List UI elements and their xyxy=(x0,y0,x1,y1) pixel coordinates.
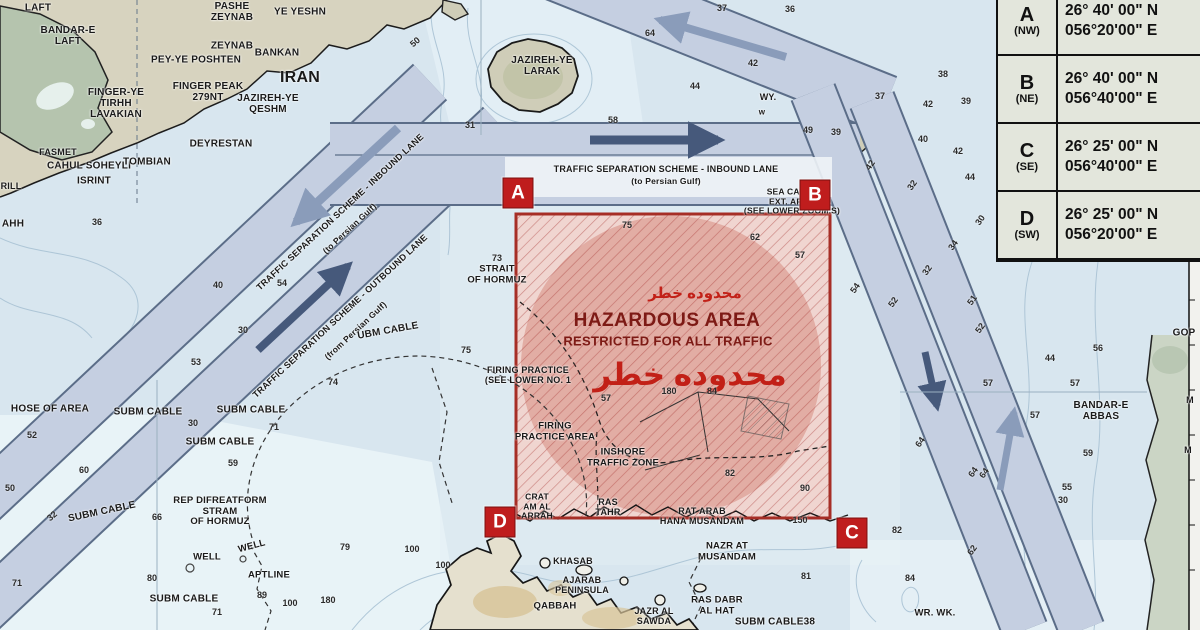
corner-letter: D xyxy=(1020,209,1034,229)
hazardous-area xyxy=(500,214,848,524)
corner-direction: (SW) xyxy=(1014,229,1039,241)
latitude-value: 26° 40' 00" N xyxy=(1065,69,1200,89)
coord-row-d: D (SW) 26° 25' 00" N 056°20'00" E xyxy=(998,192,1200,260)
hazard-hatching xyxy=(516,214,830,518)
coord-row-b: B (NE) 26° 40' 00" N 056°40'00" E xyxy=(998,56,1200,124)
corner-letter: B xyxy=(1020,73,1034,93)
latitude-value: 26° 40' 00" N xyxy=(1065,1,1200,21)
corner-letter: C xyxy=(1020,141,1034,161)
latitude-value: 26° 25' 00" N xyxy=(1065,205,1200,225)
corner-letter: A xyxy=(1020,5,1034,25)
coord-row-a: A (NW) 26° 40' 00" N 056°20'00" E xyxy=(998,0,1200,56)
longitude-value: 056°20'00" E xyxy=(1065,21,1200,41)
corner-direction: (NW) xyxy=(1014,25,1040,37)
coord-row-c: C (SE) 26° 25' 00" N 056°40'00" E xyxy=(998,124,1200,192)
longitude-value: 056°40'00" E xyxy=(1065,157,1200,177)
nautical-chart: محدوده خطر HAZARDOUS AREA RESTRICTED FOR… xyxy=(0,0,1200,630)
corner-direction: (NE) xyxy=(1016,93,1039,105)
coordinate-table: A (NW) 26° 40' 00" N 056°20'00" E B (NE)… xyxy=(996,0,1200,262)
longitude-value: 056°40'00" E xyxy=(1065,89,1200,109)
corner-direction: (SE) xyxy=(1016,161,1038,173)
longitude-value: 056°20'00" E xyxy=(1065,225,1200,245)
latitude-value: 26° 25' 00" N xyxy=(1065,137,1200,157)
